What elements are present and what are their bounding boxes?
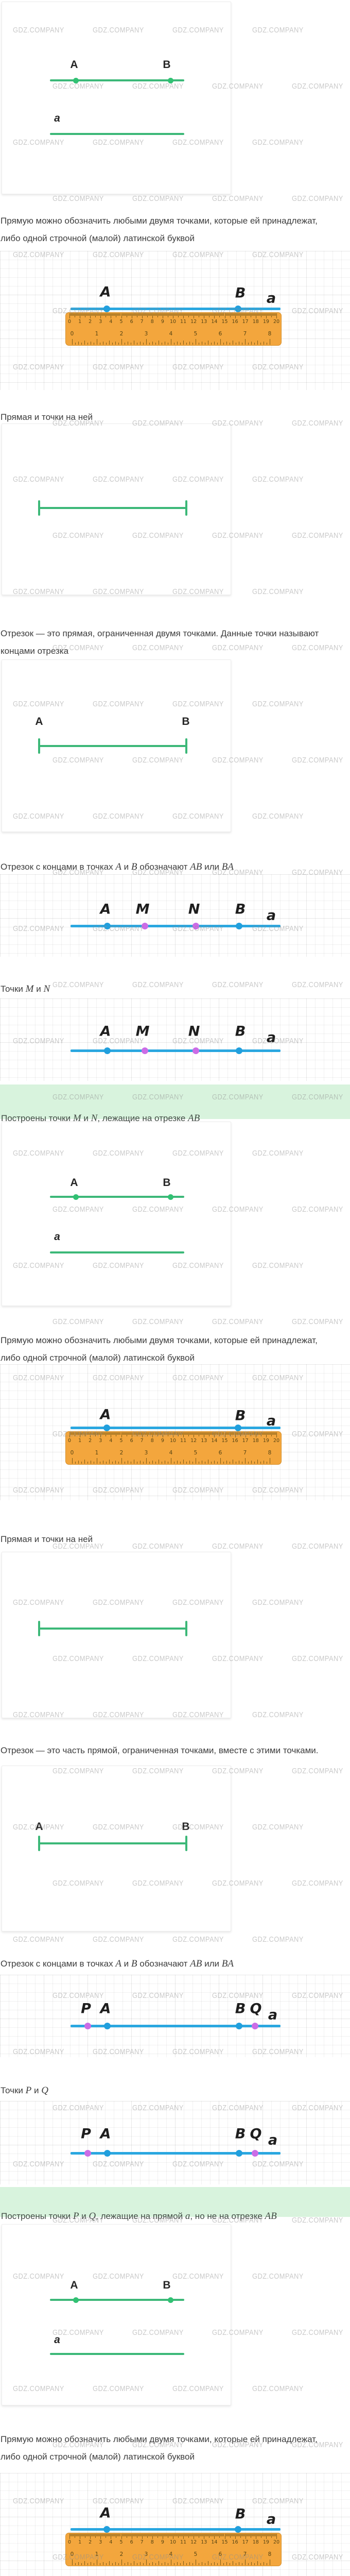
ruler-tick bbox=[203, 1432, 203, 1435]
watermark: GDZ.COMPANY bbox=[93, 250, 144, 259]
ruler-tick bbox=[205, 1432, 205, 1435]
ruler-number-cm: 4 bbox=[109, 1438, 112, 1444]
watermark: GDZ.COMPANY bbox=[13, 475, 64, 484]
segment-end-bar bbox=[38, 500, 40, 516]
point-label-Q: Q bbox=[250, 2001, 262, 2017]
watermark: GDZ.COMPANY bbox=[172, 1710, 224, 1719]
watermark: GDZ.COMPANY bbox=[212, 1205, 264, 1214]
definition-text: Прямую можно обозначить любыми двумя точ… bbox=[1, 1332, 318, 1367]
ruler-number-cm: 2 bbox=[89, 1438, 92, 1444]
ruler-tick bbox=[124, 313, 124, 316]
ruler-tick bbox=[200, 1432, 200, 1435]
ruler-tick bbox=[160, 2534, 160, 2536]
ruler-tick bbox=[206, 1432, 206, 1435]
segment-notation-text-part: B bbox=[131, 1958, 137, 1969]
ruler-tick bbox=[175, 2534, 176, 2536]
segment-AB bbox=[50, 79, 184, 81]
ruler-tick bbox=[191, 2534, 192, 2536]
ruler-tick bbox=[130, 313, 130, 316]
ruler-tick bbox=[143, 2534, 144, 2536]
ruler-tick bbox=[273, 1432, 274, 1435]
ruler-tick bbox=[91, 1461, 91, 1464]
ruler-tick bbox=[118, 2534, 118, 2536]
watermark: GDZ.COMPANY bbox=[13, 924, 64, 933]
ruler-tick bbox=[190, 2534, 191, 2536]
ruler: 0123456789101112131415161718192001234567… bbox=[65, 312, 282, 346]
ruler-tick bbox=[232, 2534, 233, 2536]
ruler-number-cm: 15 bbox=[221, 1438, 227, 1444]
result-banner: Построены точки M и N, лежащие на отрезк… bbox=[0, 1084, 350, 1119]
watermark: GDZ.COMPANY bbox=[292, 307, 343, 315]
watermark: GDZ.COMPANY bbox=[292, 1767, 343, 1775]
watermark: GDZ.COMPANY bbox=[132, 1205, 184, 1214]
line-a-blue bbox=[71, 2152, 281, 2155]
watermark: GDZ.COMPANY bbox=[252, 2047, 304, 2056]
result-text-part: AB bbox=[265, 2211, 277, 2222]
ruler-tick bbox=[254, 343, 255, 345]
ruler-tick bbox=[107, 1432, 107, 1435]
ruler-tick bbox=[221, 2534, 222, 2536]
ruler-tick bbox=[174, 2563, 174, 2565]
result-text-part: AB bbox=[188, 1113, 200, 1124]
watermark: GDZ.COMPANY bbox=[292, 2328, 343, 2337]
point-label-A: A bbox=[100, 2126, 111, 2142]
segment-end-bar bbox=[185, 500, 187, 516]
watermark: GDZ.COMPANY bbox=[212, 868, 264, 877]
ruler-number-inch: 1 bbox=[95, 1450, 99, 1456]
point-label-a: a bbox=[267, 291, 276, 307]
ruler-tick bbox=[125, 313, 125, 316]
ruler-tick bbox=[145, 2534, 146, 2536]
ruler-tick bbox=[190, 313, 191, 316]
watermark: GDZ.COMPANY bbox=[13, 26, 64, 35]
ruler-tick bbox=[185, 1432, 186, 1435]
ruler-tick bbox=[270, 339, 270, 345]
watermark: GDZ.COMPANY bbox=[172, 2047, 224, 2056]
ruler-tick bbox=[127, 2534, 127, 2538]
ruler-number-inch: 0 bbox=[71, 331, 74, 337]
grid-figure-card: AMNBa bbox=[0, 874, 350, 957]
ruler-tick bbox=[87, 343, 88, 345]
ruler-tick bbox=[189, 342, 190, 345]
ruler-number-cm: 12 bbox=[190, 319, 197, 325]
segment-end-bar bbox=[185, 738, 187, 754]
ruler-tick bbox=[103, 342, 103, 345]
ruler-tick bbox=[273, 2534, 274, 2536]
ruler-tick bbox=[97, 339, 97, 345]
line-a-blue bbox=[71, 1427, 281, 1429]
watermark: GDZ.COMPANY bbox=[13, 812, 64, 821]
ruler-tick bbox=[195, 1432, 195, 1435]
ruler-tick bbox=[159, 1460, 159, 1464]
ruler-tick bbox=[109, 1460, 110, 1464]
ruler-tick bbox=[111, 1432, 111, 1437]
watermark: GDZ.COMPANY bbox=[52, 1205, 104, 1214]
ruler-tick bbox=[254, 1462, 255, 1464]
ruler-tick bbox=[107, 2534, 107, 2536]
ruler-tick bbox=[172, 2534, 172, 2536]
ruler-tick bbox=[91, 2534, 92, 2536]
ruler-tick bbox=[171, 1458, 171, 1464]
definition-line: Прямую можно обозначить любыми двумя точ… bbox=[1, 1332, 318, 1349]
ruler-tick bbox=[192, 2534, 193, 2536]
watermark: GDZ.COMPANY bbox=[252, 1823, 304, 1832]
ruler-tick bbox=[112, 1432, 112, 1435]
ruler-tick bbox=[126, 1432, 126, 1435]
ruler-tick bbox=[210, 1432, 211, 1435]
ruler-tick bbox=[213, 2534, 214, 2536]
ruler-tick bbox=[176, 2534, 177, 2536]
ruler-tick bbox=[236, 1462, 236, 1464]
ruler-number-cm: 10 bbox=[170, 2539, 176, 2545]
ruler-number-cm: 1 bbox=[78, 319, 81, 325]
ruler-tick bbox=[214, 1461, 215, 1464]
ruler-tick bbox=[112, 2534, 112, 2536]
ruler-tick bbox=[103, 1461, 103, 1464]
ruler-tick bbox=[109, 2534, 109, 2536]
watermark: GDZ.COMPANY bbox=[132, 307, 184, 315]
ruler-tick bbox=[189, 1432, 190, 1435]
watermark: GDZ.COMPANY bbox=[13, 1598, 64, 1607]
watermark: GDZ.COMPANY bbox=[292, 82, 343, 91]
ruler-tick bbox=[109, 341, 110, 345]
ruler-tick bbox=[77, 2534, 77, 2536]
ruler-tick bbox=[115, 1432, 115, 1435]
ruler-tick bbox=[250, 2534, 250, 2536]
ruler-tick bbox=[267, 313, 268, 316]
segment-notation-text-part: AB bbox=[190, 861, 202, 872]
watermark: GDZ.COMPANY bbox=[93, 1261, 144, 1270]
ruler-tick bbox=[152, 2562, 153, 2565]
ruler-number-cm: 9 bbox=[161, 319, 164, 325]
ruler-tick bbox=[262, 2534, 262, 2536]
ruler-tick bbox=[274, 1432, 275, 1435]
ruler-tick bbox=[149, 2563, 150, 2565]
point-label-P: P bbox=[81, 2126, 91, 2142]
ruler-tick bbox=[240, 2534, 241, 2538]
watermark: GDZ.COMPANY bbox=[52, 1767, 104, 1775]
ruler-tick bbox=[163, 2534, 163, 2539]
ruler-tick bbox=[269, 313, 270, 316]
point-dot-B bbox=[168, 1194, 173, 1200]
ruler-tick bbox=[103, 2562, 103, 2565]
ruler-tick bbox=[216, 2534, 217, 2536]
ruler-tick bbox=[134, 1460, 134, 1464]
result-banner: Построены точки P и Q, лежащие на прямой… bbox=[0, 2187, 350, 2217]
ruler-tick bbox=[137, 2563, 137, 2565]
ruler-tick bbox=[186, 313, 187, 316]
ruler-tick bbox=[139, 2534, 139, 2536]
point-dot-A bbox=[104, 1047, 111, 1054]
ruler-tick bbox=[230, 2534, 231, 2538]
ruler-tick bbox=[242, 343, 242, 345]
ruler-number-cm: 16 bbox=[232, 1438, 238, 1444]
ruler-tick bbox=[238, 2534, 239, 2536]
point-label-a: a bbox=[268, 2007, 277, 2023]
ruler-tick bbox=[73, 2534, 73, 2536]
ruler-tick bbox=[217, 343, 218, 345]
point-label-Q: Q bbox=[250, 2126, 262, 2142]
ruler-number-inch: 1 bbox=[95, 331, 99, 337]
ruler-tick bbox=[118, 1432, 118, 1435]
watermark: GDZ.COMPANY bbox=[132, 2553, 184, 2562]
ruler-tick bbox=[248, 343, 249, 345]
ruler-tick bbox=[256, 2534, 256, 2539]
ruler-tick bbox=[113, 2534, 113, 2536]
ruler-tick bbox=[171, 2534, 171, 2536]
point-label-A: A bbox=[70, 59, 78, 71]
ruler-tick bbox=[72, 339, 73, 345]
ruler-tick bbox=[165, 1461, 165, 1464]
ruler-tick bbox=[252, 2534, 252, 2536]
ruler-tick bbox=[218, 2534, 219, 2536]
ruler-number-cm: 9 bbox=[161, 1438, 164, 1444]
segment-AB bbox=[39, 1628, 187, 1630]
ruler-tick bbox=[184, 313, 185, 316]
ruler-tick bbox=[236, 343, 236, 345]
ruler-tick bbox=[185, 313, 186, 316]
point-label-B: B bbox=[235, 285, 246, 301]
ruler-tick bbox=[198, 2534, 198, 2536]
figure-card: AB bbox=[2, 659, 231, 832]
ruler-number-cm: 12 bbox=[190, 2539, 197, 2545]
watermark: GDZ.COMPANY bbox=[212, 82, 264, 91]
ruler-number-cm: 18 bbox=[253, 319, 259, 325]
definition-line: либо одной строчной (малой) латинской бу… bbox=[1, 1349, 318, 1367]
ruler-tick bbox=[108, 2534, 108, 2536]
ruler-tick bbox=[205, 2534, 205, 2536]
ruler-tick bbox=[194, 2534, 194, 2539]
ruler-tick bbox=[86, 2534, 86, 2536]
ruler-tick bbox=[116, 1432, 116, 1436]
watermark: GDZ.COMPANY bbox=[132, 2328, 184, 2337]
ruler-tick bbox=[134, 2561, 134, 2565]
watermark: GDZ.COMPANY bbox=[132, 194, 184, 203]
segment-AB bbox=[50, 2299, 184, 2301]
watermark: GDZ.COMPANY bbox=[292, 2553, 343, 2562]
ruler-tick bbox=[226, 342, 227, 345]
ruler-tick bbox=[115, 2562, 116, 2565]
ruler-tick bbox=[128, 1432, 128, 1435]
ruler-tick bbox=[209, 313, 209, 317]
watermark: GDZ.COMPANY bbox=[252, 1710, 304, 1719]
ruler-tick bbox=[130, 1432, 130, 1435]
ruler-tick bbox=[131, 313, 131, 316]
watermark: GDZ.COMPANY bbox=[292, 1093, 343, 1101]
segment-end-bar bbox=[38, 1621, 40, 1636]
ruler-tick bbox=[268, 2534, 269, 2536]
watermark: GDZ.COMPANY bbox=[252, 924, 304, 933]
ruler-tick bbox=[81, 2563, 82, 2565]
ruler-tick bbox=[169, 2534, 169, 2536]
ruler-tick bbox=[273, 313, 274, 316]
ruler-tick bbox=[189, 2534, 190, 2536]
ruler-number-cm: 11 bbox=[180, 2539, 186, 2545]
ruler-tick bbox=[103, 2534, 104, 2536]
ruler-tick bbox=[223, 1462, 224, 1464]
ruler-tick bbox=[100, 343, 100, 345]
point-label-B: B bbox=[235, 2001, 246, 2017]
ruler-tick bbox=[125, 2534, 125, 2536]
result-text-part: a bbox=[185, 2211, 190, 2222]
ruler-tick bbox=[185, 2534, 186, 2536]
ruler-tick bbox=[134, 2534, 134, 2536]
ruler-tick bbox=[257, 2561, 258, 2565]
ruler-tick bbox=[113, 1432, 113, 1435]
ruler-tick bbox=[265, 313, 266, 316]
figure-card bbox=[2, 423, 231, 595]
watermark: GDZ.COMPANY bbox=[13, 2497, 64, 2505]
ruler-number-cm: 3 bbox=[99, 2539, 102, 2545]
definition-line: Отрезок — это часть прямой, ограниченная… bbox=[1, 1742, 319, 1759]
ruler-tick bbox=[196, 1458, 196, 1464]
definition-text: Отрезок — это прямая, ограниченная двумя… bbox=[1, 625, 319, 660]
watermark: GDZ.COMPANY bbox=[172, 1486, 224, 1495]
ruler-tick bbox=[187, 1432, 188, 1435]
ruler-tick bbox=[245, 1458, 246, 1464]
ruler-tick bbox=[149, 2534, 150, 2536]
point-label-B: B bbox=[235, 1024, 246, 1040]
result-text-part: N bbox=[91, 1113, 98, 1124]
segment-notation-text: Отрезок с концами в точках A и B обознач… bbox=[1, 858, 234, 876]
ruler-number-cm: 16 bbox=[232, 319, 238, 325]
ruler-tick bbox=[211, 2534, 212, 2536]
ruler-tick bbox=[76, 2534, 76, 2536]
ruler-number-inch: 2 bbox=[120, 331, 124, 337]
ruler-tick bbox=[181, 2534, 182, 2536]
ruler-tick bbox=[257, 1460, 258, 1464]
watermark: GDZ.COMPANY bbox=[292, 2216, 343, 2225]
watermark: GDZ.COMPANY bbox=[172, 475, 224, 484]
ruler-tick bbox=[208, 2561, 208, 2565]
ruler-tick bbox=[201, 313, 201, 316]
watermark: GDZ.COMPANY bbox=[52, 1093, 104, 1101]
section-heading-mn-part: N bbox=[43, 984, 50, 994]
segment-end-bar bbox=[38, 738, 40, 754]
ruler-tick bbox=[92, 2534, 93, 2536]
watermark: GDZ.COMPANY bbox=[252, 1149, 304, 1158]
watermark: GDZ.COMPANY bbox=[13, 587, 64, 596]
point-label-a: a bbox=[267, 1413, 276, 1429]
ruler-tick bbox=[161, 2534, 161, 2536]
ruler-tick bbox=[132, 2534, 132, 2539]
ruler-tick bbox=[106, 313, 106, 317]
ruler-tick bbox=[264, 1432, 265, 1435]
watermark: GDZ.COMPANY bbox=[13, 1261, 64, 1270]
ruler-tick bbox=[188, 2534, 189, 2538]
ruler-tick bbox=[233, 2561, 233, 2565]
watermark: GDZ.COMPANY bbox=[212, 1542, 264, 1551]
point-dot-P bbox=[84, 2023, 91, 2029]
ruler-tick bbox=[104, 313, 105, 316]
ruler-tick bbox=[199, 313, 199, 317]
ruler-tick bbox=[219, 2534, 220, 2538]
ruler-number-cm: 2 bbox=[89, 2539, 92, 2545]
watermark: GDZ.COMPANY bbox=[172, 1598, 224, 1607]
ruler-tick bbox=[226, 2534, 226, 2536]
ruler-number-inch: 6 bbox=[219, 1450, 222, 1456]
ruler-tick bbox=[119, 1432, 119, 1435]
ruler-tick bbox=[128, 2534, 128, 2536]
ruler-tick bbox=[134, 341, 134, 345]
ruler-number-cm: 14 bbox=[211, 319, 217, 325]
watermark: GDZ.COMPANY bbox=[212, 1430, 264, 1438]
watermark: GDZ.COMPANY bbox=[132, 2216, 184, 2225]
ruler-tick bbox=[84, 341, 85, 345]
ruler-number-cm: 18 bbox=[253, 1438, 259, 1444]
ruler-tick bbox=[79, 2534, 79, 2536]
ruler-tick bbox=[196, 2560, 196, 2565]
ruler-tick bbox=[242, 2534, 243, 2536]
ruler-tick bbox=[121, 339, 122, 345]
watermark: GDZ.COMPANY bbox=[132, 531, 184, 540]
ruler-tick bbox=[131, 2563, 131, 2565]
watermark: GDZ.COMPANY bbox=[252, 1261, 304, 1270]
ruler-tick bbox=[178, 2534, 179, 2538]
ruler-tick bbox=[115, 2534, 115, 2536]
ruler-number-cm: 20 bbox=[273, 2539, 279, 2545]
watermark: GDZ.COMPANY bbox=[132, 1430, 184, 1438]
ruler-tick bbox=[270, 1432, 271, 1435]
watermark: GDZ.COMPANY bbox=[292, 531, 343, 540]
watermark: GDZ.COMPANY bbox=[52, 868, 104, 877]
ruler-tick bbox=[264, 2534, 265, 2536]
ruler-tick bbox=[211, 2563, 212, 2565]
watermark: GDZ.COMPANY bbox=[93, 138, 144, 147]
watermark: GDZ.COMPANY bbox=[212, 1879, 264, 1888]
ruler-number-inch: 5 bbox=[194, 331, 198, 337]
result-text: Построены точки M и N, лежащие на отрезк… bbox=[1, 1113, 200, 1124]
watermark: GDZ.COMPANY bbox=[252, 363, 304, 371]
ruler-tick bbox=[202, 1461, 202, 1464]
watermark: GDZ.COMPANY bbox=[172, 700, 224, 708]
watermark: GDZ.COMPANY bbox=[52, 307, 104, 315]
watermark: GDZ.COMPANY bbox=[93, 1710, 144, 1719]
ruler-tick bbox=[148, 2534, 149, 2536]
ruler-tick bbox=[233, 341, 233, 345]
ruler-tick bbox=[261, 2534, 261, 2538]
ruler-tick bbox=[215, 2534, 216, 2536]
ruler-tick bbox=[116, 2534, 116, 2538]
ruler-tick bbox=[220, 2534, 221, 2536]
ruler-tick bbox=[270, 2560, 270, 2565]
ruler-tick bbox=[222, 2534, 223, 2536]
ruler-tick bbox=[171, 339, 171, 345]
watermark: GDZ.COMPANY bbox=[132, 1991, 184, 2000]
ruler-tick bbox=[200, 2534, 200, 2536]
ruler-tick bbox=[114, 1432, 114, 1435]
ruler-tick bbox=[231, 2534, 232, 2536]
watermark: GDZ.COMPANY bbox=[13, 363, 64, 371]
ruler-number-cm: 1 bbox=[78, 1438, 81, 1444]
ruler-tick bbox=[109, 313, 109, 316]
ruler-tick bbox=[110, 1432, 110, 1435]
watermark: GDZ.COMPANY bbox=[93, 2497, 144, 2505]
segment-notation-text-part: или bbox=[202, 1959, 221, 1969]
point-dot-M bbox=[142, 1047, 148, 1054]
ruler-number-cm: 6 bbox=[130, 319, 133, 325]
watermark: GDZ.COMPANY bbox=[93, 2384, 144, 2393]
ruler-tick bbox=[117, 1432, 117, 1435]
ruler-tick bbox=[140, 1461, 141, 1464]
ruler-tick bbox=[242, 2563, 242, 2565]
ruler-tick bbox=[204, 2534, 204, 2539]
ruler-tick bbox=[192, 1432, 193, 1435]
ruler-tick bbox=[120, 1432, 120, 1435]
ruler-tick bbox=[96, 2534, 97, 2536]
ruler-tick bbox=[140, 2562, 141, 2565]
ruler-tick bbox=[206, 2534, 206, 2536]
